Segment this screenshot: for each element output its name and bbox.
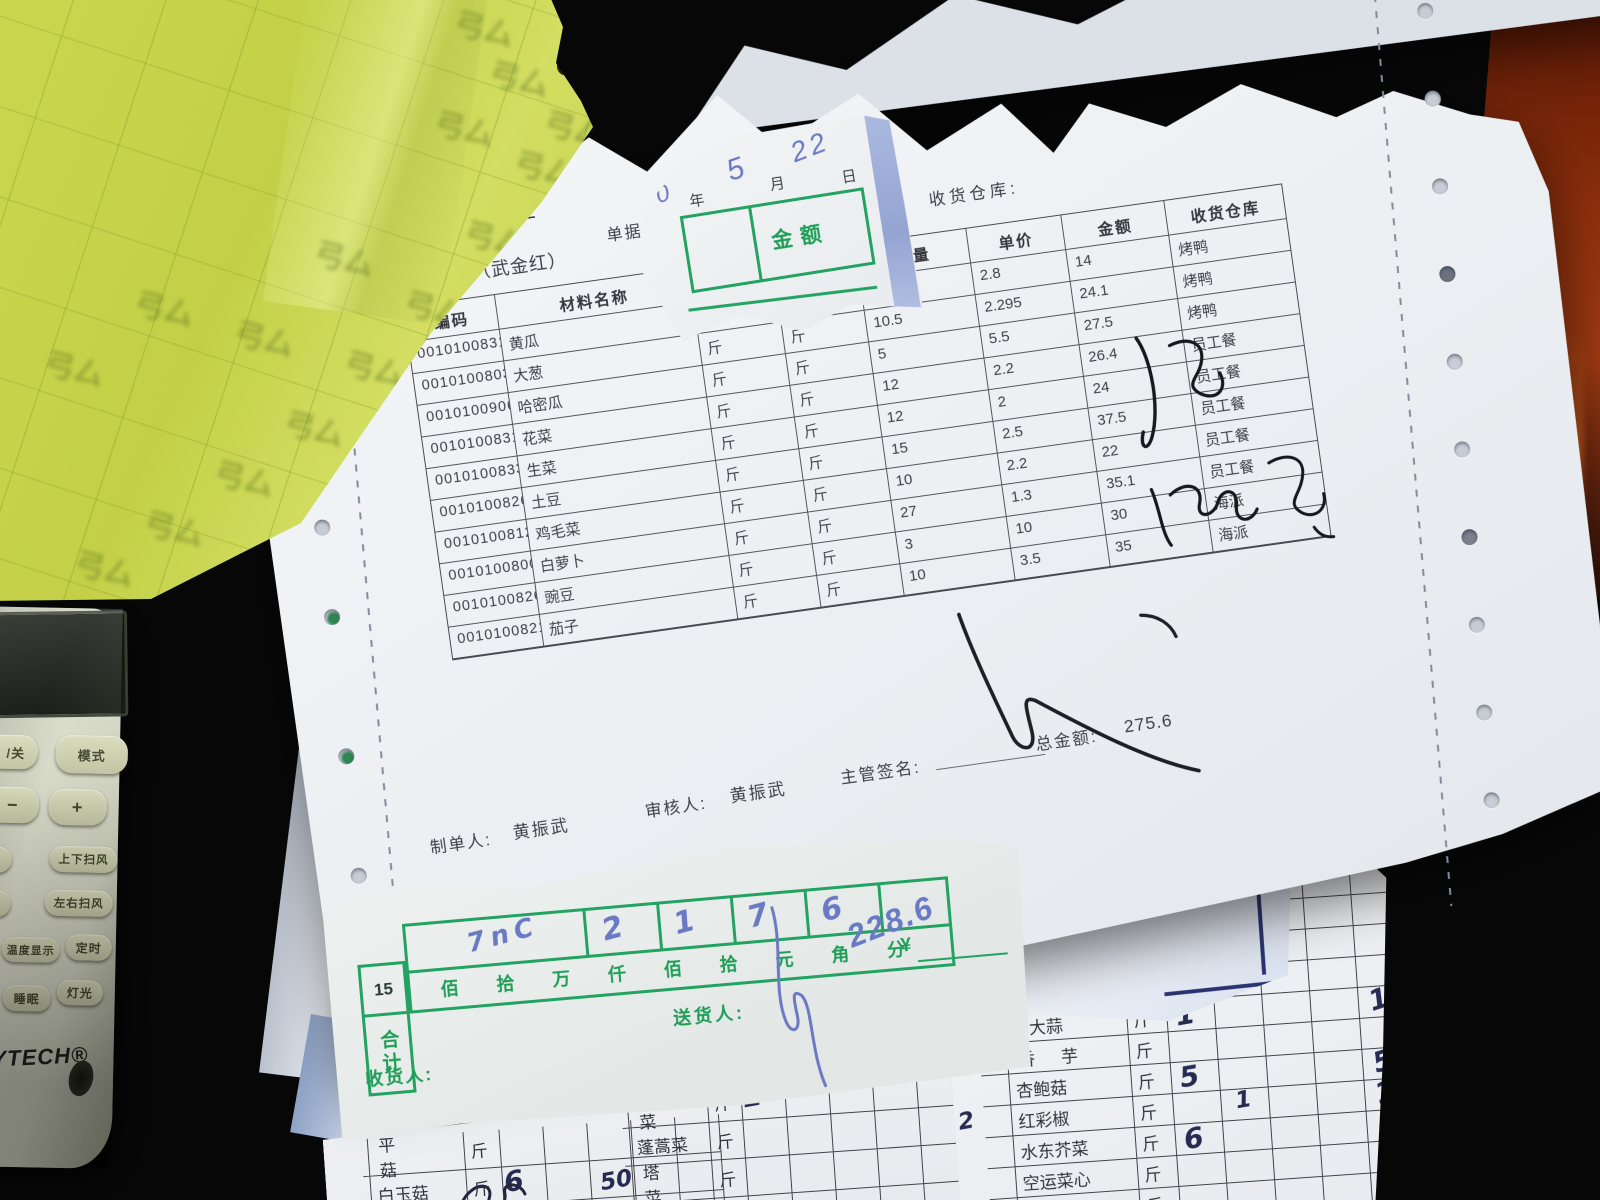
grid-cell: [787, 1114, 834, 1155]
feed-hole: [1424, 90, 1441, 107]
grid-cell: [1227, 1180, 1277, 1200]
blue-pen-scrawl: [713, 888, 851, 1108]
grid-cell: [1360, 1016, 1410, 1050]
receiver-label: 收货人:: [364, 1060, 434, 1092]
year-label: 年: [688, 188, 706, 211]
feed-hole: [338, 748, 355, 765]
grid-cell: 斤: [709, 1121, 746, 1161]
grid-cell: [1371, 1170, 1421, 1200]
grid-cell: [1321, 1143, 1371, 1177]
grid-cell: [988, 1167, 1018, 1200]
hw-digit: 2: [598, 908, 633, 949]
grid-cell: [1219, 1056, 1269, 1090]
grid-cell: [1269, 1084, 1319, 1118]
page-number: 15: [373, 979, 394, 1001]
feed-hole: [323, 608, 340, 625]
grid-cell: [1317, 1081, 1367, 1115]
grid-cell: 斤: [1135, 1125, 1177, 1159]
grid-cell: 斤: [712, 1158, 749, 1198]
grid-cell: [1323, 1174, 1373, 1200]
unit-label: 佰: [440, 974, 460, 1001]
feed-hole: [1446, 353, 1463, 370]
amount-box-divider: [748, 208, 762, 280]
grid-cell: [831, 1111, 878, 1152]
unit-label: 拾: [495, 969, 515, 996]
unit-label: 万: [551, 965, 571, 992]
grid-cell: [1275, 1177, 1325, 1200]
feed-hole: [1483, 792, 1500, 809]
grid-cell: [1314, 1050, 1364, 1084]
grid-cell: [875, 1108, 922, 1149]
grid-cell: [746, 1155, 793, 1196]
amount-underline: [918, 952, 1008, 962]
grid-cell: [1312, 1019, 1362, 1053]
grid-cell: [543, 1123, 590, 1164]
grid-cell: [880, 1184, 927, 1200]
grid-cell: [546, 1161, 593, 1200]
grid-cell: [878, 1146, 925, 1187]
grid-cell: [743, 1117, 790, 1158]
ink-scribble: [454, 1171, 547, 1200]
remote-control: /关 模式 − + 上下扫风 左右扫风 温度显示 定时 睡眠 灯光 YTECH®: [0, 606, 191, 1171]
grid-cell: 斤: [463, 1130, 502, 1170]
remote-shading: [0, 606, 123, 1169]
grid-cell: 斤: [1129, 1032, 1171, 1066]
grid-cell: [986, 1136, 1016, 1169]
amount-box: 金额: [680, 187, 876, 293]
grid-cell: [981, 1074, 1011, 1107]
grid-cell: [1319, 1112, 1369, 1146]
hw-digit: 1: [670, 901, 705, 942]
grid-cell: [1179, 1184, 1229, 1200]
unit-label: 仟: [607, 960, 627, 987]
grid-cell: 斤: [1137, 1156, 1179, 1190]
month-label: 月: [768, 172, 786, 195]
feed-hole: [314, 519, 331, 536]
feed-hole: [1468, 616, 1485, 633]
grid-cell: [983, 1105, 1013, 1138]
hw-digit: 7nC: [464, 911, 543, 959]
currency-symbol: ¥: [900, 935, 912, 958]
hw-number: 6.5: [1373, 1098, 1430, 1145]
day-label: 日: [840, 164, 858, 187]
feed-hole: [1454, 441, 1471, 458]
doc-prefix-label: 单据: [605, 217, 644, 246]
grid-cell: 斤: [1131, 1063, 1173, 1097]
grid-cell: [790, 1152, 837, 1193]
grid-cell: [834, 1149, 881, 1190]
grid-cell: [1223, 1118, 1273, 1152]
feed-hole: [1417, 2, 1434, 19]
yellow-punch-hole: [557, 57, 572, 75]
hw-number: 50: [598, 1165, 634, 1196]
grid-cell: [1267, 1053, 1317, 1087]
hw-day: 22: [786, 125, 834, 169]
grid-cell: [1216, 1026, 1266, 1060]
pen-scrawl: [924, 555, 1253, 825]
grid-cell: [1273, 1146, 1323, 1180]
grid-cell: [1225, 1149, 1275, 1183]
grid-cell: [836, 1187, 883, 1200]
grid-cell: [1369, 1139, 1419, 1173]
desk-photo: /关 模式 − + 上下扫风 左右扫风 温度显示 定时 睡眠 灯光 YTECH®…: [0, 0, 1600, 1200]
feed-hole: [1439, 265, 1456, 282]
feed-hole: [1461, 529, 1478, 546]
feed-hole: [1431, 178, 1448, 195]
grid-cell: [1177, 1153, 1227, 1187]
feed-hole: [350, 867, 367, 884]
grid-cell: [499, 1127, 546, 1168]
amount-label: 金额: [769, 216, 831, 255]
grid-cell: [1264, 1022, 1314, 1056]
grid-cell: [1271, 1115, 1321, 1149]
grid-cell: 斤: [1133, 1094, 1175, 1128]
grid-cell: 斤: [1139, 1187, 1181, 1200]
unit-label: 佰: [663, 955, 683, 982]
feed-hole: [1476, 704, 1493, 721]
grid-cell: 塔菜: [632, 1161, 714, 1200]
handwritten-signature: [1088, 295, 1351, 575]
page-number-cell: 15: [357, 961, 409, 1018]
hw-month: 5: [722, 151, 749, 189]
hw-number: 2: [956, 1107, 976, 1135]
